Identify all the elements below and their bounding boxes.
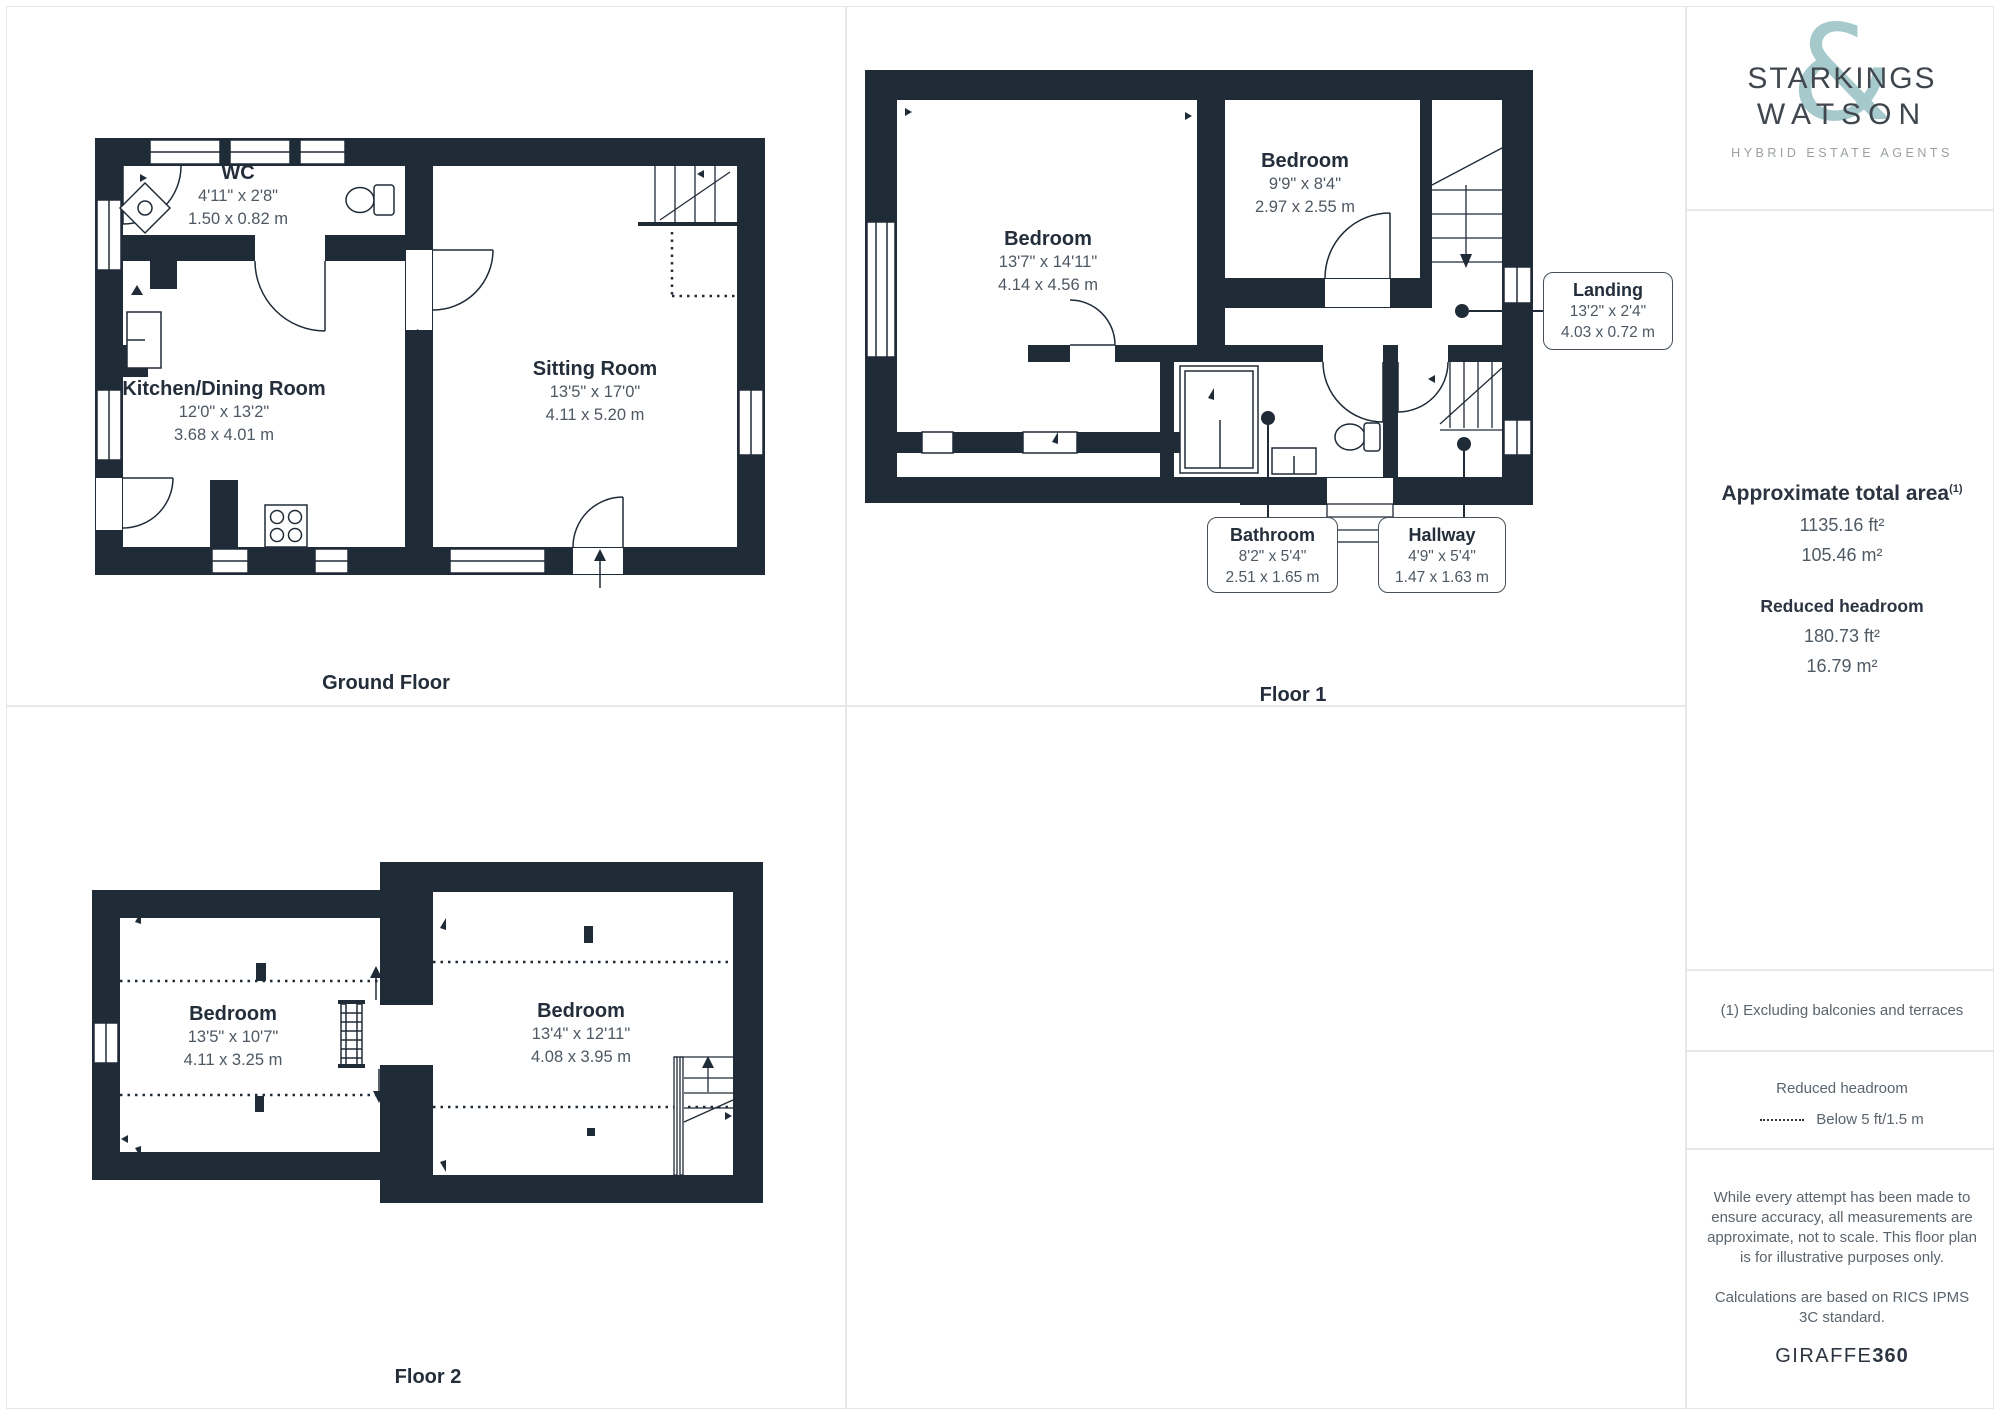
floor2-stairs xyxy=(674,1056,733,1175)
floor2-windows xyxy=(94,1023,118,1063)
room-metric: 4.14 x 4.56 m xyxy=(998,274,1098,297)
room-imperial: 4'9" x 5'4" xyxy=(1379,546,1505,567)
bathroom-sink-icon xyxy=(1272,448,1316,474)
room-label-f2-bedroom1: Bedroom 13'5" x 10'7" 4.11 x 3.25 m xyxy=(184,1003,283,1072)
room-metric: 1.50 x 0.82 m xyxy=(188,208,288,231)
room-imperial: 13'5" x 10'7" xyxy=(184,1026,283,1049)
provider-logo: GIRAFFE360 xyxy=(1686,1345,1998,1368)
room-imperial: 13'2" x 2'4" xyxy=(1544,301,1672,322)
total-area-m: 105.46 m² xyxy=(1686,545,1998,566)
room-metric: 2.97 x 2.55 m xyxy=(1255,196,1355,219)
room-imperial: 8'2" x 5'4" xyxy=(1208,546,1337,567)
legend-title: Reduced headroom xyxy=(1686,1080,1998,1097)
reduced-headroom-ft: 180.73 ft² xyxy=(1686,626,1998,647)
floor-title-ground: Ground Floor xyxy=(322,672,450,695)
room-metric: 3.68 x 4.01 m xyxy=(122,424,325,447)
room-imperial: 13'7" x 14'11" xyxy=(998,251,1098,274)
floor1-plan xyxy=(865,70,1543,542)
total-area-title-text: Approximate total area xyxy=(1721,482,1949,505)
room-name: Bedroom xyxy=(531,1000,631,1023)
room-name: Bedroom xyxy=(998,228,1098,251)
shower-icon xyxy=(1180,366,1258,473)
agency-name-line1: STARKINGS xyxy=(1686,62,1998,96)
room-metric: 4.03 x 0.72 m xyxy=(1544,322,1672,343)
callout-landing: Landing 13'2" x 2'4" 4.03 x 0.72 m xyxy=(1543,272,1673,350)
agency-tagline: HYBRID ESTATE AGENTS xyxy=(1686,146,1998,160)
disclaimer-1: While every attempt has been made to ens… xyxy=(1706,1188,1978,1268)
room-label-kitchen: Kitchen/Dining Room 12'0" x 13'2" 3.68 x… xyxy=(122,378,325,447)
reduced-headroom-title: Reduced headroom xyxy=(1686,596,1998,617)
floor-title-floor2: Floor 2 xyxy=(395,1366,462,1389)
room-metric: 1.47 x 1.63 m xyxy=(1379,567,1505,588)
room-imperial: 4'11" x 2'8" xyxy=(188,185,288,208)
floor1-fixtures xyxy=(1180,366,1380,474)
agency-logo: & STARKINGS WATSON HYBRID ESTATE AGENTS xyxy=(1686,0,1998,209)
total-area-title: Approximate total area(1) xyxy=(1686,482,1998,506)
room-label-f2-bedroom2: Bedroom 13'4" x 12'11" 4.08 x 3.95 m xyxy=(531,1000,631,1069)
room-name: Bedroom xyxy=(184,1003,283,1026)
callout-hallway: Hallway 4'9" x 5'4" 1.47 x 1.63 m xyxy=(1378,517,1506,593)
room-imperial: 13'4" x 12'11" xyxy=(531,1023,631,1046)
room-name: Bedroom xyxy=(1255,150,1355,173)
room-name: Hallway xyxy=(1379,525,1505,546)
room-name: WC xyxy=(188,162,288,185)
room-label-wc: WC 4'11" x 2'8" 1.50 x 0.82 m xyxy=(188,162,288,231)
provider-name: GIRAFFE xyxy=(1775,1345,1872,1367)
footnote-marker: (1) xyxy=(1949,483,1962,495)
agency-name-line2: WATSON xyxy=(1686,98,1998,132)
floor-title-floor1: Floor 1 xyxy=(1260,684,1327,707)
reduced-headroom-m: 16.79 m² xyxy=(1686,656,1998,677)
footnote-text: (1) Excluding balconies and terraces xyxy=(1686,1002,1998,1019)
room-label-f1-bedroom1: Bedroom 13'7" x 14'11" 4.14 x 4.56 m xyxy=(998,228,1098,297)
ground-floor-stairs xyxy=(638,166,737,296)
sink-icon xyxy=(120,183,170,233)
room-metric: 4.11 x 3.25 m xyxy=(184,1049,283,1072)
floorplan-page: WC 4'11" x 2'8" 1.50 x 0.82 m Kitchen/Di… xyxy=(0,0,2000,1415)
room-name: Landing xyxy=(1544,280,1672,301)
floorplan-drawing xyxy=(0,0,2000,1415)
total-area-ft: 1135.16 ft² xyxy=(1686,515,1998,536)
room-imperial: 12'0" x 13'2" xyxy=(122,401,325,424)
appliance-icon xyxy=(127,312,161,368)
room-name: Sitting Room xyxy=(533,358,657,381)
dotted-line-sample xyxy=(1760,1119,1804,1121)
floor2-loft-ladder xyxy=(338,966,385,1103)
legend-row: Below 5 ft/1.5 m xyxy=(1686,1111,1998,1129)
room-label-sitting-room: Sitting Room 13'5" x 17'0" 4.11 x 5.20 m xyxy=(533,358,657,427)
room-imperial: 9'9" x 8'4" xyxy=(1255,173,1355,196)
legend: Reduced headroom Below 5 ft/1.5 m xyxy=(1686,1080,1998,1129)
hob-icon xyxy=(265,505,307,547)
area-summary: Approximate total area(1) 1135.16 ft² 10… xyxy=(1686,482,1998,677)
callout-bathroom: Bathroom 8'2" x 5'4" 2.51 x 1.65 m xyxy=(1207,517,1338,593)
toilet-icon xyxy=(346,185,394,215)
legend-label: Below 5 ft/1.5 m xyxy=(1816,1111,1924,1128)
room-metric: 2.51 x 1.65 m xyxy=(1208,567,1337,588)
provider-suffix: 360 xyxy=(1872,1345,1908,1367)
room-metric: 4.11 x 5.20 m xyxy=(533,404,657,427)
room-name: Bathroom xyxy=(1208,525,1337,546)
bathroom-toilet-icon xyxy=(1335,423,1380,451)
room-metric: 4.08 x 3.95 m xyxy=(531,1046,631,1069)
room-name: Kitchen/Dining Room xyxy=(122,378,325,401)
room-label-f1-bedroom2: Bedroom 9'9" x 8'4" 2.97 x 2.55 m xyxy=(1255,150,1355,219)
room-imperial: 13'5" x 17'0" xyxy=(533,381,657,404)
disclaimer-2: Calculations are based on RICS IPMS 3C s… xyxy=(1706,1288,1978,1328)
